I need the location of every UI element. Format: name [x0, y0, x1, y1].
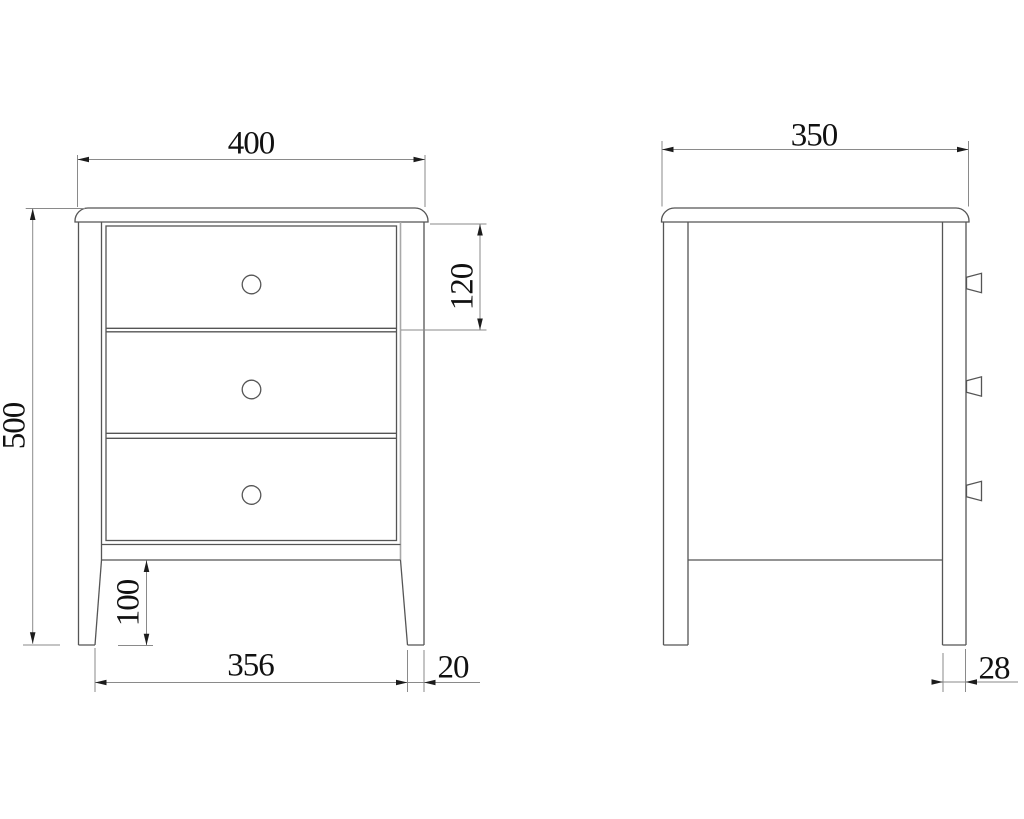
- dim-100-arrow-bottom: [144, 634, 150, 646]
- drawer-knob-2: [242, 380, 261, 399]
- dim-400-arrow-right: [414, 157, 426, 163]
- dim-label-overall-height: 500: [0, 402, 32, 449]
- drawing-geometry: [0, 0, 1024, 819]
- dim-28-arrow-left: [932, 679, 944, 685]
- drawer-knob-1: [242, 275, 261, 294]
- dim-label-leg-depth: 28: [979, 652, 1010, 685]
- drawer-knob-3: [242, 486, 261, 505]
- technical-drawing-canvas: 400 500 120 100 356 20 350 28: [0, 0, 1024, 819]
- dim-350-arrow-right: [957, 147, 969, 153]
- dim-label-drawer-height: 120: [447, 264, 480, 311]
- dim-356-arrow-left: [95, 680, 107, 686]
- dim-label-overall-depth: 350: [791, 119, 838, 152]
- front-right-leg-inner-line: [401, 560, 408, 645]
- dim-100-arrow-top: [144, 561, 150, 573]
- dim-28-arrow-right: [966, 679, 978, 685]
- side-knob-1: [967, 273, 982, 292]
- side-knob-3: [967, 481, 982, 500]
- side-view: [662, 208, 982, 645]
- side-tabletop: [662, 208, 970, 222]
- front-left-leg-inner-line: [95, 560, 102, 645]
- dim-label-leg-inner-span: 356: [227, 650, 274, 683]
- dim-500-arrow-top: [30, 209, 36, 221]
- side-knob-2: [967, 377, 982, 396]
- dim-label-overall-width: 400: [228, 128, 275, 161]
- front-dimensions: [23, 155, 487, 692]
- dim-20-arrow-right: [424, 680, 436, 686]
- dim-label-leg-bottom-width: 20: [438, 652, 469, 685]
- front-tabletop: [75, 208, 428, 222]
- dim-120-arrow-bottom: [477, 319, 483, 331]
- dim-500-arrow-bottom: [30, 632, 36, 644]
- dim-350-arrow-left: [662, 147, 674, 153]
- dim-356-arrow-right: [396, 680, 408, 686]
- dim-400-arrow-left: [78, 157, 90, 163]
- side-dimensions: [662, 141, 1018, 692]
- dim-120-arrow-top: [477, 224, 483, 236]
- dim-label-leg-height: 100: [112, 580, 145, 627]
